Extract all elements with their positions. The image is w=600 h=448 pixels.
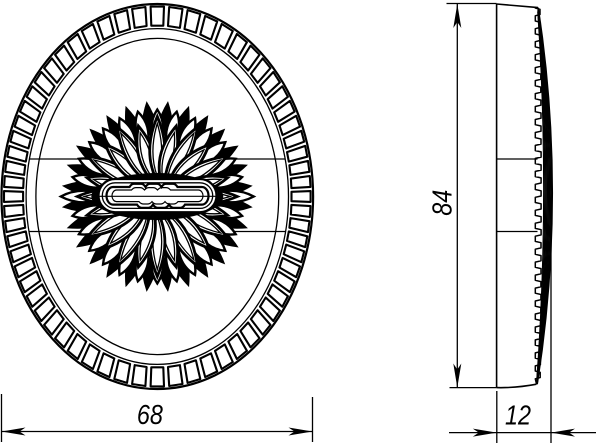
svg-text:12: 12 — [505, 401, 531, 431]
svg-text:68: 68 — [137, 400, 164, 430]
svg-text:84: 84 — [428, 190, 458, 216]
